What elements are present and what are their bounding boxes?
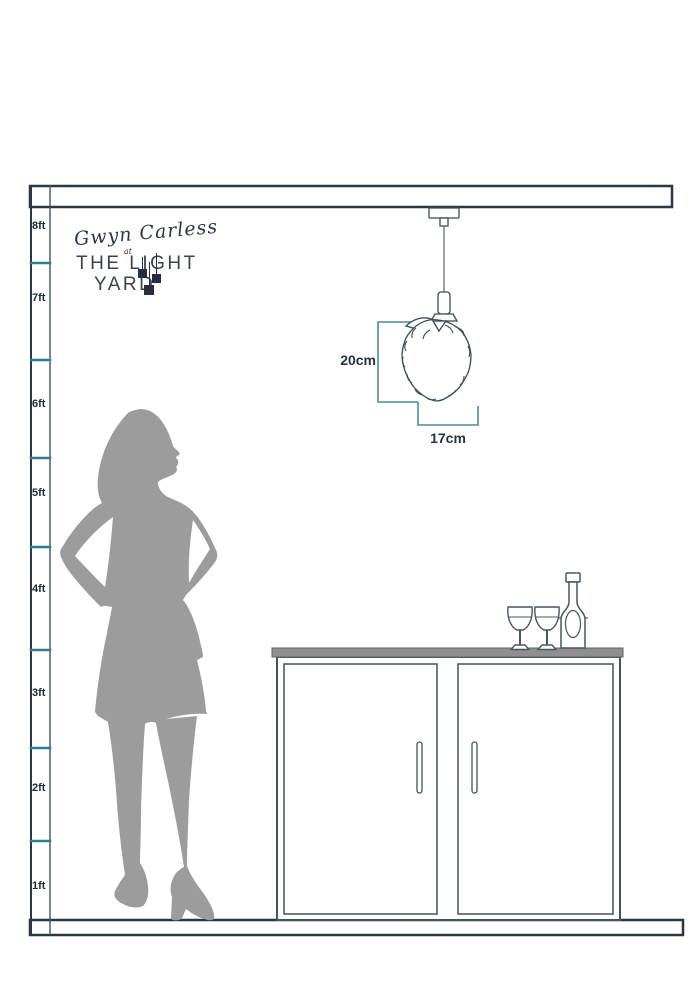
wine-glass-1 <box>508 607 532 650</box>
cabinet-door-left <box>284 664 437 914</box>
width-dimension-bracket <box>418 402 478 425</box>
ruler-ticks <box>31 263 50 841</box>
ceiling-line <box>30 186 672 207</box>
pendant-cord-icon <box>156 253 157 274</box>
brand-script-name: Gwyn Carless <box>73 216 219 250</box>
ruler-label-3ft: 3ft <box>32 687 52 699</box>
cord-connector <box>440 218 448 226</box>
ruler-label-7ft: 7ft <box>32 292 52 304</box>
wine-glass-2 <box>535 607 559 650</box>
pendant-stem <box>438 292 450 314</box>
pendant-shade <box>402 318 471 401</box>
ruler-label-2ft: 2ft <box>32 782 52 794</box>
pendant-cord-icon <box>142 257 143 269</box>
door-handle-right <box>472 742 477 793</box>
ruler-label-1ft: 1ft <box>32 880 52 892</box>
pendant-square-icon <box>144 285 154 295</box>
pendant-width-label: 17cm <box>426 430 470 446</box>
pendant-square-icon <box>138 269 147 278</box>
door-handle-left <box>417 742 422 793</box>
ruler-label-4ft: 4ft <box>32 583 52 595</box>
wine-bottle <box>558 573 588 648</box>
ruler-label-5ft: 5ft <box>32 487 52 499</box>
pendant-light <box>429 208 459 321</box>
cabinet-door-right <box>458 664 613 914</box>
pendant-cord-icon <box>149 262 150 285</box>
floor-line <box>30 920 683 935</box>
diagram-canvas <box>0 0 700 1000</box>
wine-glasses <box>508 607 559 650</box>
scale-diagram-page: 8ft 7ft 6ft 5ft 4ft 3ft 2ft 1ft 20cm 17c… <box>0 0 700 1000</box>
ruler-label-6ft: 6ft <box>32 398 52 410</box>
pendant-height-label: 20cm <box>332 352 376 368</box>
pendant-square-icon <box>152 274 161 283</box>
brand-logo: Gwyn Carless at THE LIGHT YARD <box>66 214 206 304</box>
bottle-cap <box>566 573 580 582</box>
woman-silhouette <box>60 409 217 920</box>
bottle-label <box>566 611 581 638</box>
brand-name-line1: THE LIGHT <box>76 253 198 275</box>
ceiling-rose <box>429 208 459 218</box>
cabinet-countertop <box>272 648 623 657</box>
cabinet <box>272 648 623 920</box>
ruler-label-8ft: 8ft <box>32 220 52 232</box>
